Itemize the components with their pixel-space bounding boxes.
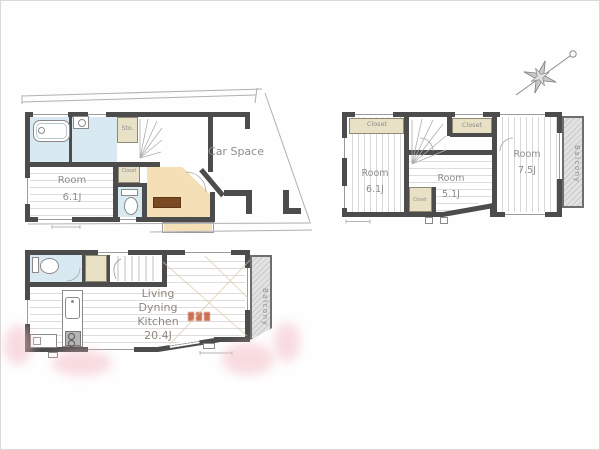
orange-stamp-watermark: [188, 312, 212, 321]
f1-wall-top-stub: [245, 117, 250, 129]
f2-window-top-2: [455, 112, 483, 117]
f1-window-top-1: [33, 112, 68, 117]
f1-wall-toilet-right: [142, 183, 147, 217]
balcony-3f-label: Balcony: [253, 276, 269, 338]
room-6-1j-label: Room 6.1J: [30, 172, 114, 206]
f1-window-top-2: [88, 112, 106, 117]
closet-2f-left-label: Closet: [350, 120, 404, 128]
f3-wall-div1: [82, 255, 85, 282]
f3-window-top-1: [98, 250, 128, 255]
f2-window-bottom: [505, 212, 545, 217]
compass-icon: [516, 51, 576, 99]
stove-burner-2: [68, 340, 75, 347]
entrance-step: [153, 197, 181, 208]
room2-center-label-line2: 5.1J: [412, 187, 490, 203]
f3-wall-stairs-right: [162, 250, 167, 287]
washbasin-bowl: [78, 119, 86, 127]
carspace-wall-b2: [283, 208, 301, 214]
ldk-label-line1: Living: [116, 287, 200, 301]
f1-window-bottom-room: [38, 217, 72, 222]
f3-balcony-door: [245, 268, 250, 310]
closet-2f-mid-label: Closet: [452, 121, 492, 129]
toilet-bowl-1f: [124, 197, 138, 215]
f1-wall-mid: [25, 162, 160, 167]
ldk-floor-upper: [167, 255, 245, 289]
stove-burner-1: [68, 333, 75, 340]
entrance-porch-step: [164, 224, 212, 231]
carspace-wall-a2: [246, 196, 252, 214]
closet-1f-label: Closet: [118, 168, 140, 174]
room2-right-label-line1: Room: [497, 147, 557, 163]
ldk-label-size: 20.4J: [116, 329, 200, 343]
toilet-bowl-3f: [40, 258, 59, 274]
stairs-3f: [114, 256, 153, 281]
pink-watermark-1: [4, 325, 32, 365]
f1-wall-right: [208, 112, 213, 172]
pink-watermark-3: [222, 343, 274, 375]
room2-left-label: Room 6.1J: [344, 166, 406, 198]
pink-watermark-2: [52, 350, 112, 376]
bathtub-drain: [38, 127, 45, 134]
floor-plan-canvas: Car Space Sto. Closet Room 6.1J: [0, 0, 600, 450]
f3-window-left: [25, 300, 30, 324]
room-6-1j-label-line2: 6.1J: [30, 189, 114, 206]
ldk-counter-sink: [33, 337, 41, 345]
f1-wall-closet-toilet: [118, 183, 145, 187]
f2-balcony-door: [557, 133, 562, 179]
entrance-floor: [147, 167, 210, 217]
linework-overlay: [0, 0, 600, 450]
f2-wall-under-closet: [450, 133, 492, 137]
room-6-1j-label-line1: Room: [30, 172, 114, 189]
room2-center-label: Room 5.1J: [412, 171, 490, 203]
f2-window-left-1: [342, 138, 347, 158]
stairs-1f: [140, 119, 162, 158]
room2-left-label-line1: Room: [344, 166, 406, 182]
balcony-2f-label: Balcony: [565, 128, 581, 200]
f2-window-top-1: [355, 112, 393, 117]
f2-vent-stub-2: [440, 217, 448, 224]
storage-3-box: [85, 255, 107, 282]
room2-center-label-line1: Room: [412, 171, 490, 187]
room2-left-label-line2: 6.1J: [344, 182, 406, 198]
f1-window-bottom-toilet: [120, 217, 136, 222]
f1-wall-entrance-right: [210, 192, 215, 222]
pink-watermark-4: [274, 322, 300, 362]
f2-window-top-3: [500, 112, 545, 117]
f3-wall-div2: [107, 255, 110, 282]
toilet-tank-3f: [32, 257, 39, 273]
f3-stub-2: [203, 343, 215, 349]
f3-window-top-2: [185, 250, 231, 255]
f2-vent-stub-1: [425, 217, 433, 224]
toilet-tank-1f: [121, 189, 138, 196]
car-space-label: Car Space: [202, 145, 270, 158]
storage-label: Sto.: [116, 125, 139, 132]
f2-wall-room-top: [409, 150, 492, 155]
room2-right-label-line2: 7.5J: [497, 163, 557, 179]
kitchen-faucet: [71, 300, 74, 303]
room2-right-label: Room 7.5J: [497, 147, 557, 179]
